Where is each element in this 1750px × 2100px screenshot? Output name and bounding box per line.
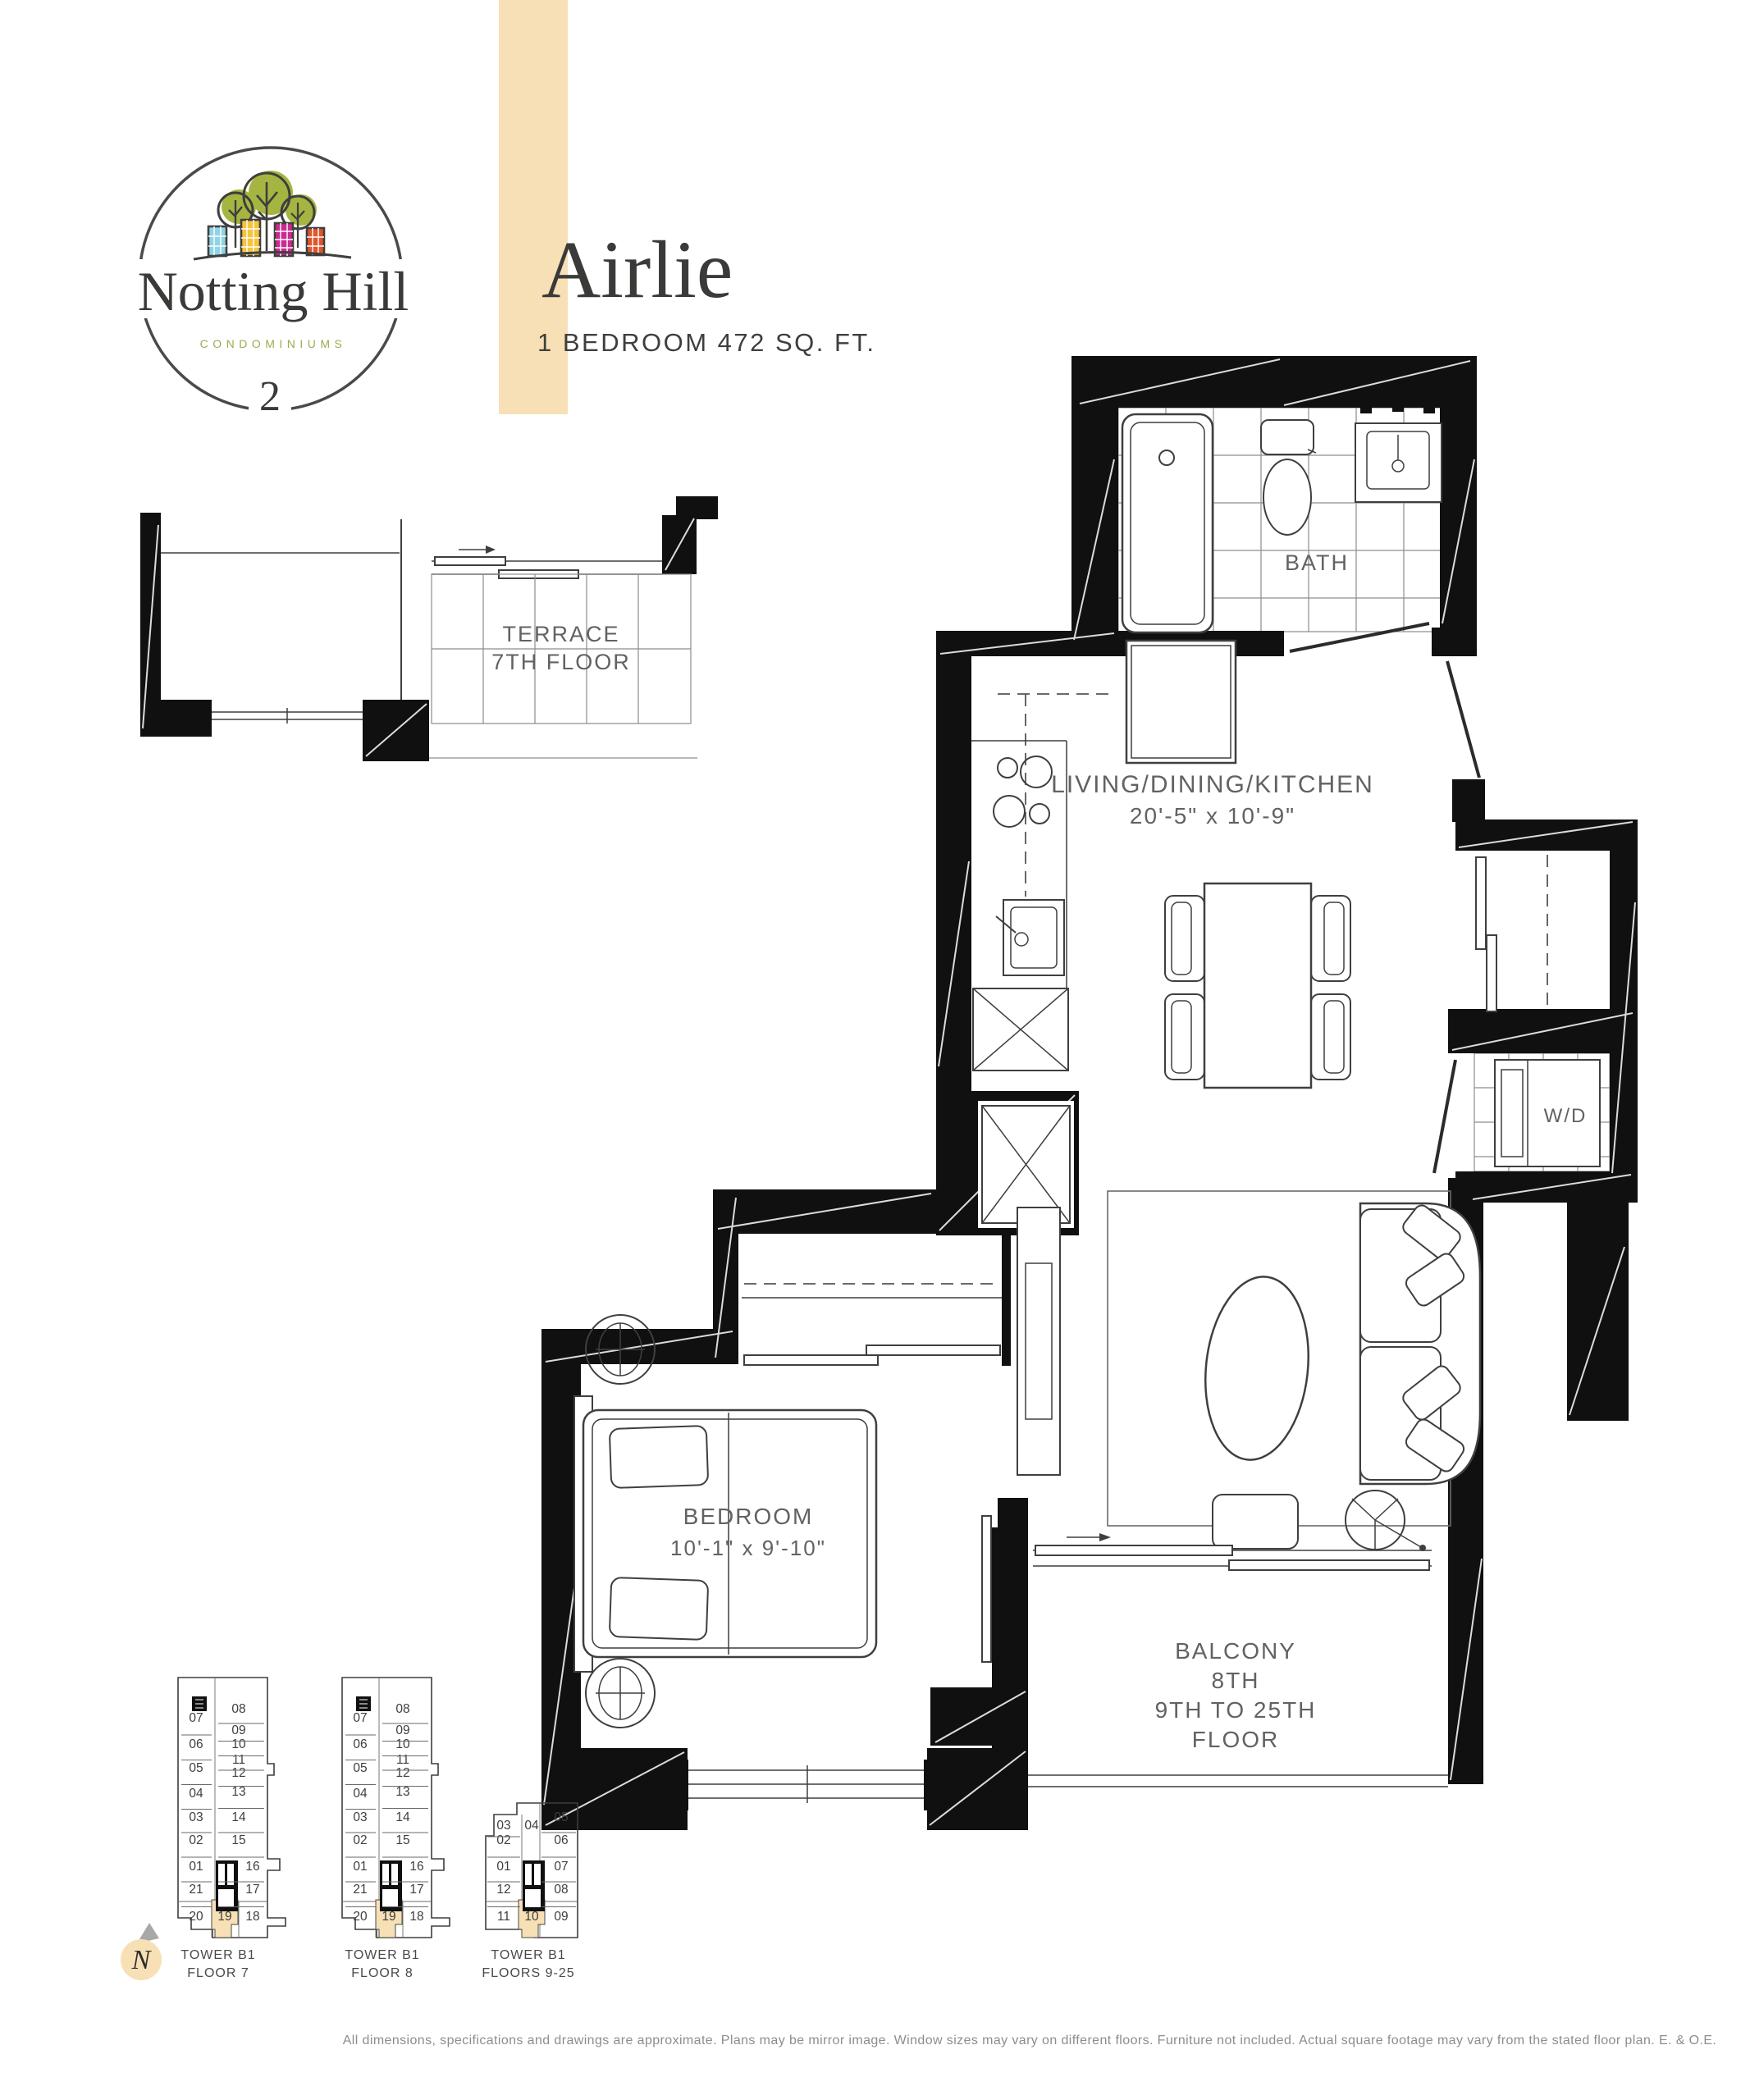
ottoman — [1213, 1495, 1298, 1549]
unit-number: 08 — [554, 1883, 568, 1897]
balcony-floor-a: 8TH — [1212, 1668, 1260, 1693]
unit-number: 06 — [189, 1737, 203, 1751]
unit-number: 11 — [396, 1753, 409, 1767]
bath-label: BATH — [1285, 550, 1349, 575]
floorplan-page: Notting Hill CONDOMINIUMS 2 Airlie 1 BED… — [0, 0, 1750, 2100]
pantry-icon — [982, 1106, 1070, 1223]
unit-number: 03 — [189, 1810, 203, 1824]
unit-number: 15 — [231, 1833, 245, 1847]
night-table-icon — [586, 1659, 655, 1728]
balcony-floor-c: FLOOR — [1192, 1727, 1279, 1752]
tv-unit — [1017, 1207, 1060, 1475]
keyplan-floor-label: FLOORS 9-25 — [482, 1966, 574, 1980]
north-label: N — [131, 1945, 153, 1975]
highlighted-unit-number: 19 — [217, 1910, 231, 1924]
keyplan-tower-label: TOWER B1 — [180, 1948, 255, 1962]
toilet-icon — [1261, 420, 1316, 535]
fridge-icon — [973, 988, 1068, 1071]
disclaimer-text: All dimensions, specifications and drawi… — [343, 2034, 1717, 2047]
unit-number: 14 — [231, 1810, 246, 1824]
unit-number: 13 — [231, 1785, 245, 1799]
terrace-label: TERRACE — [502, 622, 619, 646]
unit-number: 20 — [189, 1910, 203, 1924]
page-subtitle: 1 BEDROOM 472 SQ. FT. — [537, 328, 876, 357]
unit-number: 18 — [245, 1910, 259, 1924]
night-table-icon — [586, 1315, 655, 1384]
keyplan-floor-label: FLOOR 8 — [351, 1966, 413, 1980]
bath-sink-icon — [1355, 404, 1442, 502]
living-dimensions: 20'-5" x 10'-9" — [1130, 803, 1295, 829]
unit-number: 08 — [395, 1702, 409, 1716]
unit-number: 07 — [189, 1711, 203, 1725]
logo-phase-number: 2 — [259, 373, 281, 420]
bedroom-dimensions: 10'-1" x 9'-10" — [670, 1536, 826, 1560]
kitchen-sink-icon — [996, 900, 1064, 975]
unit-number: 18 — [409, 1910, 423, 1924]
unit-number: 12 — [231, 1766, 245, 1780]
bedroom-closet — [742, 1284, 1002, 1365]
living-label: LIVING/DINING/KITCHEN — [1051, 771, 1374, 798]
washer-dryer: W/D — [1495, 1060, 1600, 1166]
keyplan-tower-label: TOWER B1 — [345, 1948, 419, 1962]
unit-number: 16 — [245, 1860, 259, 1874]
north-arrow: N — [121, 1923, 162, 1980]
page-title: Airlie — [541, 224, 733, 315]
unit-number: 20 — [353, 1910, 368, 1924]
unit-number: 11 — [232, 1753, 245, 1767]
laundry-label: W/D — [1544, 1105, 1588, 1127]
unit-number: 05 — [189, 1761, 203, 1775]
unit-number: 01 — [189, 1860, 203, 1874]
keyplan-tower-b1-floor8: TOWER B1 FLOOR 8 07060504030201212008091… — [342, 1678, 450, 1980]
unit-number: 03 — [353, 1810, 367, 1824]
notting-hill-logo: Notting Hill CONDOMINIUMS 2 — [121, 148, 425, 420]
balcony-label: BALCONY — [1175, 1638, 1296, 1664]
cooktop-icon — [994, 756, 1052, 827]
highlighted-unit-number: 10 — [524, 1910, 539, 1924]
highlighted-unit-number: 19 — [382, 1910, 395, 1924]
sofa-icon — [1360, 1203, 1480, 1484]
terrace-slider — [432, 546, 662, 578]
coffee-table — [1197, 1271, 1318, 1465]
unit-number: 06 — [554, 1833, 568, 1847]
unit-number: 04 — [353, 1787, 368, 1801]
bath-door-leaf — [1290, 623, 1429, 651]
bedroom-door-leaf — [982, 1516, 991, 1662]
unit-number: 13 — [395, 1785, 409, 1799]
unit-number: 12 — [496, 1883, 510, 1897]
unit-number: 21 — [353, 1883, 367, 1897]
unit-number: 01 — [353, 1860, 367, 1874]
bedroom-label: BEDROOM — [683, 1504, 814, 1529]
logo-name: Notting Hill — [138, 260, 409, 322]
terrace-window — [212, 708, 363, 724]
laundry-door-leaf — [1434, 1060, 1455, 1173]
terrace-floor-label: 7TH FLOOR — [491, 650, 631, 674]
unit-number: 06 — [353, 1737, 367, 1751]
unit-number: 05 — [353, 1761, 367, 1775]
unit-number: 05 — [554, 1810, 568, 1824]
unit-number: 09 — [554, 1910, 568, 1924]
unit-number: 02 — [189, 1833, 203, 1847]
terrace-plan: TERRACE 7TH FLOOR — [140, 496, 718, 761]
entry-door-leaf — [1447, 661, 1479, 778]
bathtub-icon — [1122, 414, 1213, 632]
floorplan-svg: Notting Hill CONDOMINIUMS 2 Airlie 1 BED… — [0, 0, 1750, 2100]
unit-number: 03 — [496, 1819, 510, 1833]
unit-number: 10 — [231, 1737, 246, 1751]
keyplan-tower-b1-floor7: TOWER B1 FLOOR 7 07060504030201212008091… — [178, 1678, 286, 1980]
main-plan: BATH W/D — [541, 356, 1638, 1830]
unit-number: 08 — [231, 1702, 245, 1716]
unit-number: 07 — [353, 1711, 367, 1725]
floor-lamp-icon — [1346, 1491, 1426, 1551]
unit-number: 04 — [189, 1787, 203, 1801]
unit-number: 02 — [353, 1833, 367, 1847]
unit-number: 17 — [245, 1883, 259, 1897]
balcony: BALCONY 8TH 9TH TO 25TH FLOOR — [1028, 1533, 1448, 1787]
unit-number: 02 — [496, 1833, 510, 1847]
bed-icon — [574, 1396, 876, 1672]
unit-number: 21 — [189, 1883, 203, 1897]
entry-closet — [1476, 855, 1547, 1011]
unit-number: 16 — [409, 1860, 423, 1874]
unit-number: 14 — [395, 1810, 410, 1824]
unit-number: 09 — [231, 1723, 245, 1737]
unit-number: 07 — [554, 1860, 568, 1874]
unit-number: 01 — [496, 1860, 510, 1874]
unit-number: 12 — [395, 1766, 409, 1780]
unit-number: 15 — [395, 1833, 409, 1847]
balcony-floor-b: 9TH TO 25TH — [1155, 1697, 1317, 1723]
unit-number: 04 — [524, 1819, 539, 1833]
unit-number: 17 — [409, 1883, 423, 1897]
tree-icon — [218, 171, 317, 251]
keyplan-tower-label: TOWER B1 — [491, 1948, 565, 1962]
keyplan-floor-label: FLOOR 7 — [187, 1966, 249, 1980]
bedroom-window — [681, 1760, 931, 1810]
dining-table — [1165, 883, 1350, 1088]
unit-number: 10 — [395, 1737, 410, 1751]
unit-number: 09 — [395, 1723, 409, 1737]
unit-number: 11 — [497, 1910, 510, 1924]
logo-tagline: CONDOMINIUMS — [200, 337, 347, 350]
entry-cabinet — [1126, 641, 1236, 763]
